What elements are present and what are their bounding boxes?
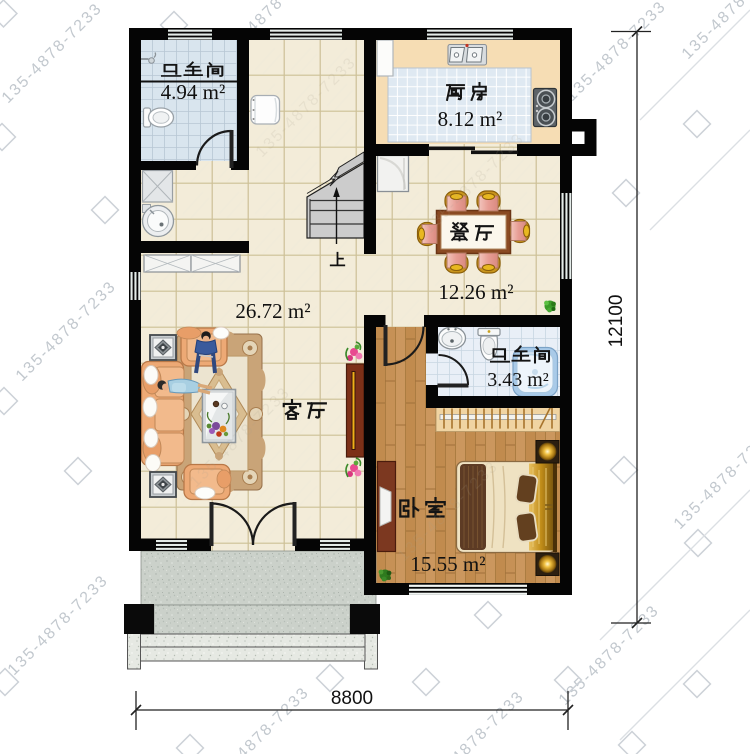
svg-text:8.12 m²: 8.12 m² — [438, 107, 503, 131]
svg-text:15.55 m²: 15.55 m² — [410, 552, 485, 576]
svg-text:8800: 8800 — [331, 688, 373, 709]
svg-text:12.26 m²: 12.26 m² — [438, 280, 513, 304]
svg-text:135-4878-7233: 135-4878-7233 — [5, 572, 112, 679]
svg-text:135-4878-7233: 135-4878-7233 — [421, 688, 528, 754]
svg-text:135-4878-7233: 135-4878-7233 — [556, 602, 663, 709]
svg-text:135-4878-7233: 135-4878-7233 — [206, 684, 313, 754]
svg-text:135-4878-7233: 135-4878-7233 — [13, 278, 120, 385]
svg-text:135-4878-7233: 135-4878-7233 — [563, 0, 670, 105]
svg-text:12100: 12100 — [606, 295, 627, 348]
svg-text:135-4878-7233: 135-4878-7233 — [0, 0, 106, 107]
svg-text:135-4878-7233: 135-4878-7233 — [671, 426, 750, 533]
svg-text:135-4878-7233: 135-4878-7233 — [679, 0, 750, 63]
svg-text:4.94 m²: 4.94 m² — [161, 80, 226, 104]
svg-text:3.43 m²: 3.43 m² — [487, 369, 549, 391]
svg-text:26.72 m²: 26.72 m² — [235, 299, 310, 323]
